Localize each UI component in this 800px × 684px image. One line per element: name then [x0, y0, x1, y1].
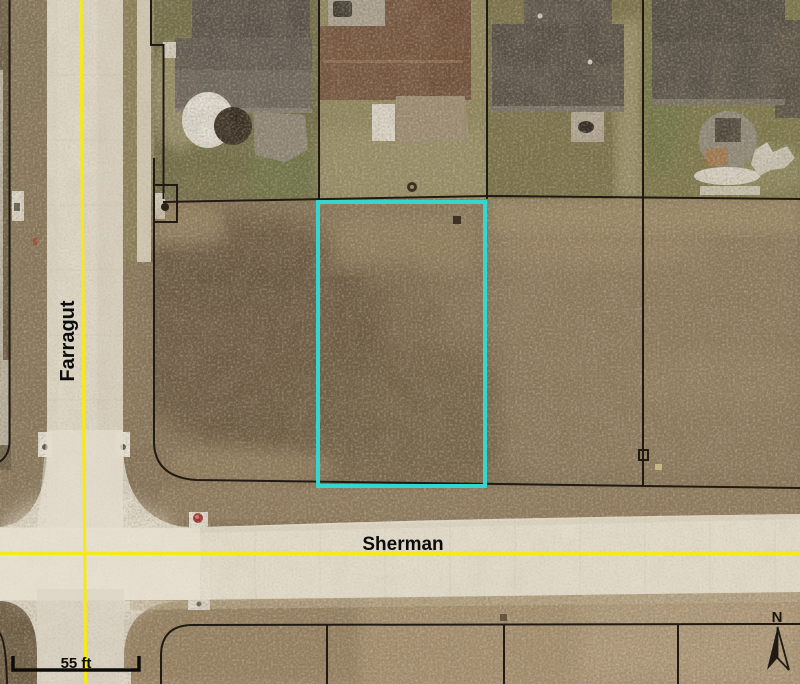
svg-text:Sherman: Sherman	[362, 534, 443, 555]
svg-text:Farragut: Farragut	[57, 300, 79, 381]
svg-text:N: N	[772, 609, 783, 626]
svg-text:55 ft: 55 ft	[61, 655, 92, 672]
